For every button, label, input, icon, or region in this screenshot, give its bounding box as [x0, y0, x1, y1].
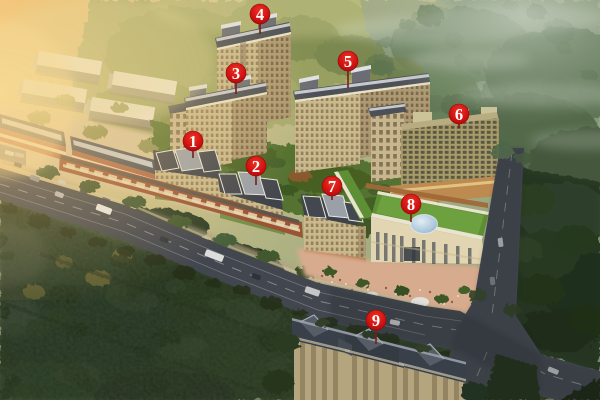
svg-text:9: 9	[372, 311, 380, 330]
svg-text:6: 6	[455, 105, 463, 124]
svg-text:3: 3	[232, 64, 240, 83]
svg-text:7: 7	[328, 177, 336, 196]
svg-text:5: 5	[344, 52, 352, 71]
svg-text:4: 4	[256, 5, 264, 24]
svg-text:1: 1	[189, 132, 197, 151]
svg-text:8: 8	[407, 195, 415, 214]
svg-text:2: 2	[252, 157, 260, 176]
